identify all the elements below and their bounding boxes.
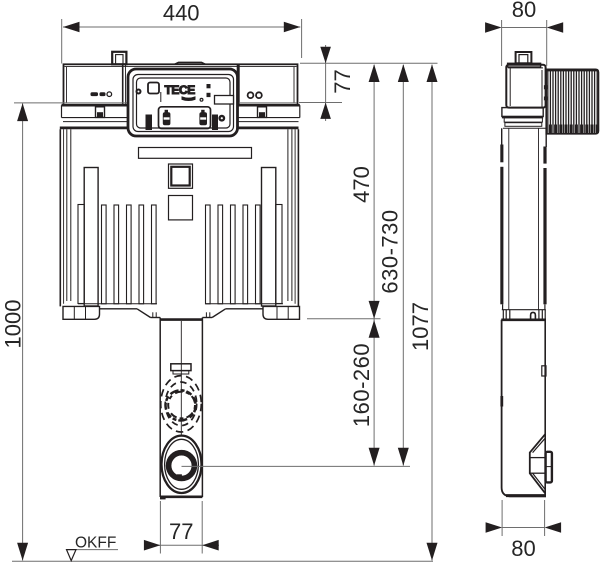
svg-text:77: 77: [330, 69, 355, 93]
svg-text:1000: 1000: [1, 300, 26, 349]
svg-text:80: 80: [512, 0, 536, 22]
svg-text:1077: 1077: [408, 302, 433, 351]
svg-text:470: 470: [349, 166, 374, 203]
svg-text:TECE: TECE: [165, 83, 196, 97]
svg-text:160-260: 160-260: [349, 343, 374, 427]
svg-text:OKFF: OKFF: [75, 535, 116, 552]
svg-text:77: 77: [169, 519, 193, 544]
svg-text:630-730: 630-730: [378, 209, 403, 293]
svg-text:440: 440: [163, 1, 200, 26]
svg-text:80: 80: [511, 536, 535, 561]
